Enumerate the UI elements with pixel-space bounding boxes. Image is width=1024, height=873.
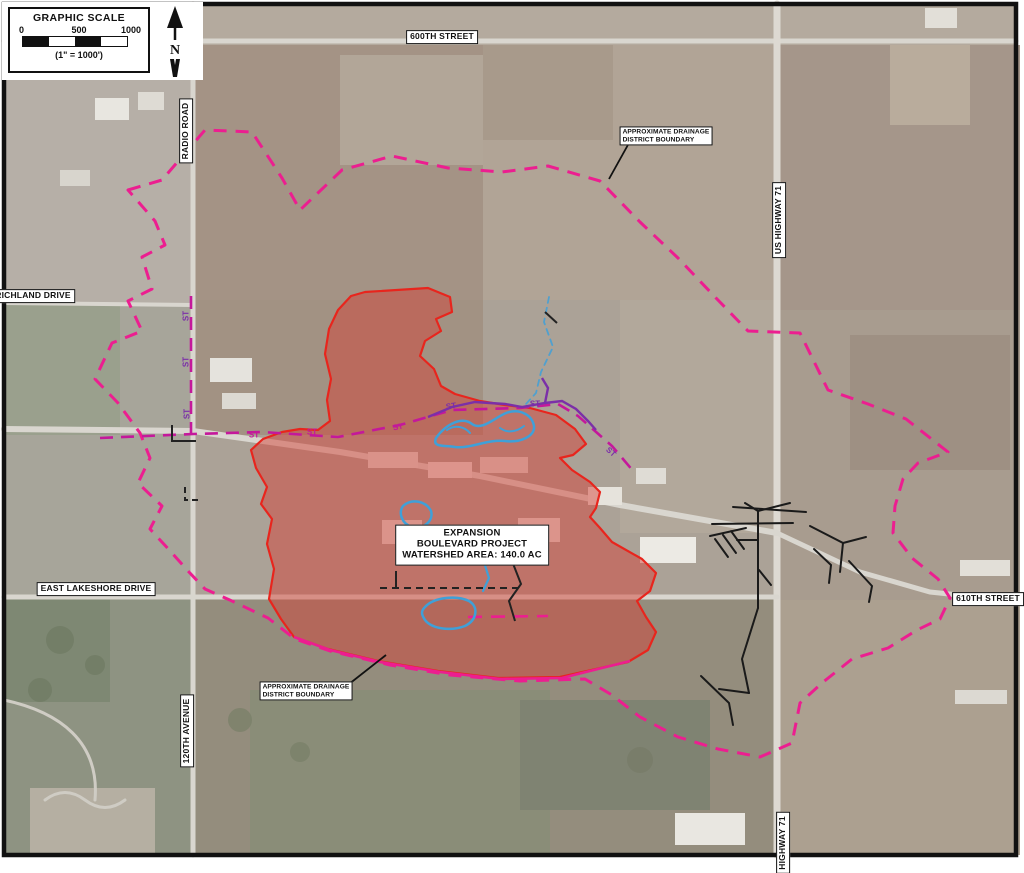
drainage-boundary-label-bottom-line2: DISTRICT BOUNDARY xyxy=(263,691,350,699)
drainage-boundary-label-bottom: APPROXIMATE DRAINAGE DISTRICT BOUNDARY xyxy=(260,681,353,700)
drainage-boundary-label-top: APPROXIMATE DRAINAGE DISTRICT BOUNDARY xyxy=(620,126,713,145)
storm-sewer-st-marker: ST xyxy=(445,401,456,411)
drainage-boundary-label-top-line1: APPROXIMATE DRAINAGE xyxy=(623,128,710,136)
storm-sewer-st-marker: ST xyxy=(182,357,191,367)
scale-bar xyxy=(22,36,128,47)
watershed-annotation-box: EXPANSION BOULEVARD PROJECT WATERSHED AR… xyxy=(395,525,549,566)
storm-sewer-st-marker: ST xyxy=(530,400,540,409)
drainage-boundary-label-top-line2: DISTRICT BOUNDARY xyxy=(623,136,710,144)
drainage-boundary-label-bottom-line1: APPROXIMATE DRAINAGE xyxy=(263,683,350,691)
road-label-highway-71: HIGHWAY 71 xyxy=(776,812,790,873)
road-label-600th-street: 600TH STREET xyxy=(406,30,478,44)
road-label-us-highway-71: US HIGHWAY 71 xyxy=(772,182,786,258)
watershed-line3: WATERSHED AREA: 140.0 AC xyxy=(402,550,542,561)
storm-sewer-st-marker: ST xyxy=(307,428,317,437)
north-letter: N xyxy=(170,43,180,58)
storm-sewer-st-marker: ST xyxy=(392,422,404,433)
scale-tick-labels: 0 500 1000 xyxy=(10,25,148,36)
scale-tick-1000: 1000 xyxy=(121,25,141,35)
road-label-richland-drive: RICHLAND DRIVE xyxy=(0,289,75,303)
storm-sewer-st-marker: ST xyxy=(183,409,192,419)
graphic-scale-title: GRAPHIC SCALE xyxy=(10,12,148,24)
scale-tick-0: 0 xyxy=(19,25,24,35)
drainage-district-map-sheet: GRAPHIC SCALE 0 500 1000 (1" = 1000') N … xyxy=(0,0,1024,873)
scale-ratio-note: (1" = 1000') xyxy=(10,50,148,60)
north-arrow-icon: N xyxy=(153,4,197,80)
storm-sewer-st-marker: ST xyxy=(249,431,259,440)
graphic-scale-box: GRAPHIC SCALE 0 500 1000 (1" = 1000') xyxy=(8,7,150,73)
scale-tick-500: 500 xyxy=(71,25,86,35)
road-label-610th-street: 610TH STREET xyxy=(952,592,1024,606)
aerial-map-canvas xyxy=(0,0,1024,873)
road-label-radio-road: RADIO ROAD xyxy=(179,99,193,164)
storm-sewer-st-marker: ST xyxy=(182,311,191,321)
road-label-120th-avenue: 120TH AVENUE xyxy=(180,695,194,768)
road-label-east-lakeshore-drive: EAST LAKESHORE DRIVE xyxy=(37,582,156,596)
